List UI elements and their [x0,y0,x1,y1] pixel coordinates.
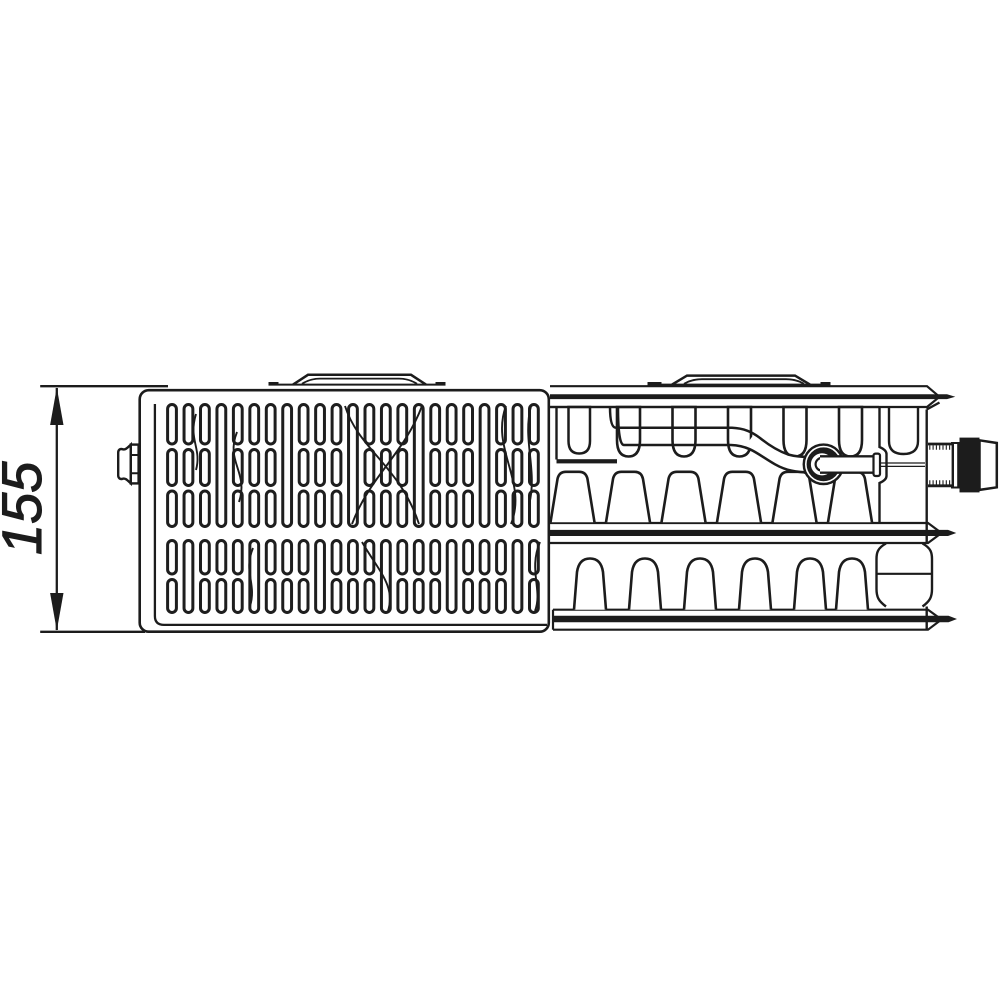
svg-text:155: 155 [0,461,53,555]
